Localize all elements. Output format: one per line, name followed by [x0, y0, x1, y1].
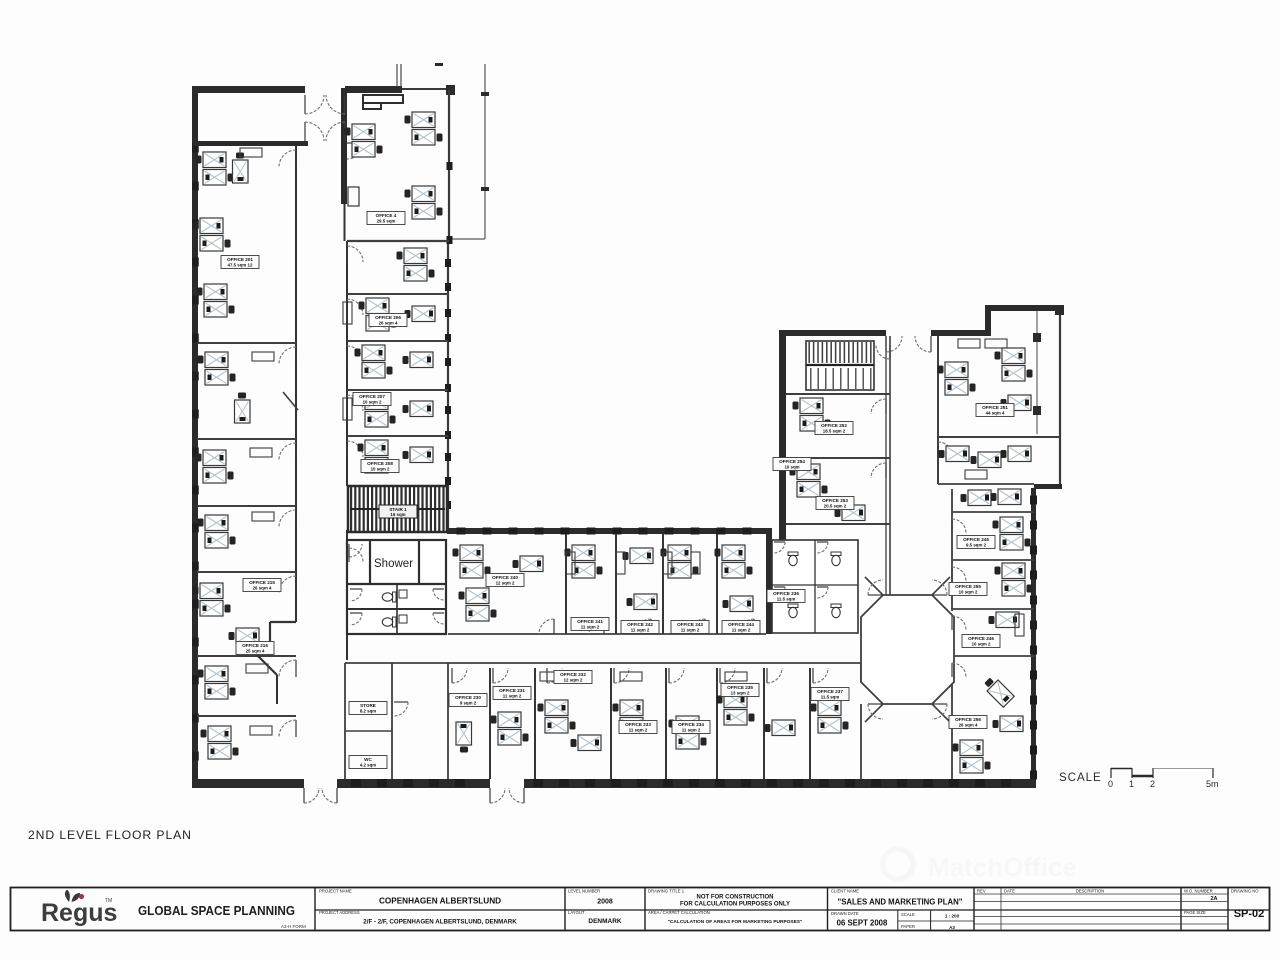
- svg-text:DENMARK: DENMARK: [588, 918, 622, 925]
- svg-text:18.5 sqm 2: 18.5 sqm 2: [823, 429, 846, 434]
- svg-text:OFFICE 231: OFFICE 231: [499, 688, 525, 693]
- svg-text:26 sqm 4: 26 sqm 4: [959, 723, 978, 728]
- svg-text:4.2 sqm: 4.2 sqm: [360, 763, 376, 768]
- svg-text:OFFICE 234: OFFICE 234: [678, 722, 704, 727]
- svg-text:MatchOffice: MatchOffice: [928, 852, 1077, 882]
- svg-text:OFFICE 208: OFFICE 208: [367, 461, 393, 466]
- svg-text:A3-H FORM: A3-H FORM: [281, 924, 306, 929]
- svg-text:DRAWING NO: DRAWING NO: [1231, 889, 1259, 894]
- svg-text:TM: TM: [105, 898, 112, 904]
- svg-text:12 sqm 2: 12 sqm 2: [564, 678, 583, 683]
- svg-text:11 sqm 2: 11 sqm 2: [631, 628, 650, 633]
- svg-text:1: 1: [1129, 779, 1134, 789]
- svg-text:11 sqm 2: 11 sqm 2: [629, 728, 648, 733]
- svg-text:OFFICE 242: OFFICE 242: [627, 622, 653, 627]
- svg-text:Shower: Shower: [374, 558, 413, 570]
- svg-text:OFFICE 232: OFFICE 232: [560, 672, 586, 677]
- svg-text:OFFICE 255: OFFICE 255: [955, 584, 981, 589]
- svg-text:OFFICE 235: OFFICE 235: [727, 685, 753, 690]
- svg-text:11.5 sqm: 11.5 sqm: [821, 695, 840, 700]
- svg-text:SCALE: SCALE: [901, 912, 915, 917]
- svg-text:5m: 5m: [1206, 779, 1219, 789]
- svg-text:OFFICE 245: OFFICE 245: [963, 537, 989, 542]
- svg-text:PAPER: PAPER: [901, 924, 915, 929]
- svg-text:9 sqm 2: 9 sqm 2: [460, 701, 477, 706]
- svg-text:A3: A3: [949, 925, 955, 930]
- svg-text:11 sqm 2: 11 sqm 2: [581, 625, 600, 630]
- svg-text:10 sqm 2: 10 sqm 2: [972, 642, 991, 647]
- svg-text:25 sqm 4: 25 sqm 4: [246, 649, 265, 654]
- svg-text:OFFICE 253: OFFICE 253: [822, 498, 848, 503]
- svg-text:DRAWING TITLE 1: DRAWING TITLE 1: [648, 889, 685, 894]
- svg-text:OFFICE 216: OFFICE 216: [242, 643, 268, 648]
- svg-text:NOT FOR CONSTRUCTION: NOT FOR CONSTRUCTION: [697, 895, 774, 901]
- svg-text:LEVEL NUMBER: LEVEL NUMBER: [568, 889, 600, 894]
- svg-text:13 sqm 2: 13 sqm 2: [731, 691, 750, 696]
- svg-text:11.5 sqm: 11.5 sqm: [777, 597, 796, 602]
- svg-text:44 sqm 4: 44 sqm 4: [986, 411, 1005, 416]
- svg-text:OFFICE 206: OFFICE 206: [375, 315, 401, 320]
- svg-text:16 sqm: 16 sqm: [390, 512, 405, 517]
- svg-text:SP-02: SP-02: [1234, 908, 1265, 920]
- svg-text:STORE: STORE: [360, 703, 376, 708]
- svg-text:LAYOUT: LAYOUT: [568, 910, 585, 915]
- svg-text:20.5 sqm 2: 20.5 sqm 2: [824, 504, 847, 509]
- svg-text:OFFICE 207: OFFICE 207: [359, 394, 385, 399]
- svg-text:11 sqm 2: 11 sqm 2: [732, 628, 751, 633]
- svg-text:OFFICE 246: OFFICE 246: [968, 636, 994, 641]
- svg-text:26 sqm 4: 26 sqm 4: [379, 321, 398, 326]
- svg-text:OFFICE 4: OFFICE 4: [376, 213, 397, 218]
- svg-text:OFFICE 241: OFFICE 241: [577, 619, 603, 624]
- svg-text:11 sqm 2: 11 sqm 2: [503, 694, 522, 699]
- svg-text:2008: 2008: [597, 899, 613, 906]
- svg-text:"SALES AND MARKETING PLAN": "SALES AND MARKETING PLAN": [838, 898, 963, 907]
- svg-text:10 sqm 2: 10 sqm 2: [363, 400, 382, 405]
- svg-text:DRAWN DATE: DRAWN DATE: [831, 911, 859, 916]
- svg-text:10 sqm 2: 10 sqm 2: [959, 590, 978, 595]
- svg-text:DATE: DATE: [1004, 889, 1015, 894]
- svg-text:47.5 sqm 12: 47.5 sqm 12: [228, 263, 253, 268]
- svg-text:PROJECT ADDRESS: PROJECT ADDRESS: [319, 910, 360, 915]
- svg-text:0: 0: [1108, 779, 1113, 789]
- svg-text:OFFICE 256: OFFICE 256: [955, 717, 981, 722]
- svg-text:OFFICE 243: OFFICE 243: [677, 622, 703, 627]
- svg-text:2/F - 2/F, COPENHAGEN ALBERTSL: 2/F - 2/F, COPENHAGEN ALBERTSLUND, DENMA…: [363, 919, 517, 926]
- svg-text:OFFICE 201: OFFICE 201: [227, 257, 253, 262]
- svg-text:10 sqm: 10 sqm: [784, 465, 799, 470]
- svg-text:2ND LEVEL FLOOR PLAN: 2ND LEVEL FLOOR PLAN: [28, 828, 192, 842]
- svg-text:2: 2: [1150, 779, 1155, 789]
- svg-text:COPENHAGEN ALBERTSLUND: COPENHAGEN ALBERTSLUND: [379, 897, 501, 906]
- svg-text:8.2 sqm: 8.2 sqm: [360, 709, 376, 714]
- svg-text:WC: WC: [364, 757, 372, 762]
- svg-text:10 sqm 2: 10 sqm 2: [371, 467, 390, 472]
- svg-text:12 sqm 2: 12 sqm 2: [496, 581, 515, 586]
- svg-text:OFFICE 230: OFFICE 230: [455, 695, 481, 700]
- svg-text:FOR CALCULATION PURPOSES ONLY: FOR CALCULATION PURPOSES ONLY: [680, 902, 790, 908]
- svg-text:9.5 sqm 2: 9.5 sqm 2: [966, 543, 987, 548]
- svg-text:"CALCULATION OF AREAS FOR MARK: "CALCULATION OF AREAS FOR MARKETING PURP…: [668, 919, 803, 925]
- svg-text:W.O. NUMBER: W.O. NUMBER: [1184, 889, 1213, 894]
- svg-text:OFFICE 244: OFFICE 244: [728, 622, 754, 627]
- svg-text:DESCRIPTION: DESCRIPTION: [1076, 889, 1105, 894]
- svg-text:2A: 2A: [1210, 896, 1217, 902]
- svg-text:1 : 200: 1 : 200: [945, 914, 960, 919]
- svg-text:OFFICE 240: OFFICE 240: [492, 575, 518, 580]
- svg-text:OFFICE 251: OFFICE 251: [982, 405, 1008, 410]
- svg-text:11 sqm 2: 11 sqm 2: [681, 628, 700, 633]
- svg-text:AREA / CARPET CALCULATION: AREA / CARPET CALCULATION: [648, 910, 710, 915]
- svg-text:OFFICE 237: OFFICE 237: [817, 689, 843, 694]
- svg-text:GLOBAL SPACE PLANNING: GLOBAL SPACE PLANNING: [138, 903, 295, 918]
- svg-text:OFFICE 215: OFFICE 215: [249, 580, 275, 585]
- svg-text:OFFICE 233: OFFICE 233: [625, 722, 651, 727]
- svg-text:CLIENT NAME: CLIENT NAME: [831, 889, 859, 894]
- svg-text:SCALE: SCALE: [1059, 772, 1102, 784]
- svg-text:OFFICE 254: OFFICE 254: [779, 459, 805, 464]
- svg-text:11 sqm 2: 11 sqm 2: [682, 728, 701, 733]
- svg-text:29.5 sqm: 29.5 sqm: [377, 219, 396, 224]
- svg-text:26 sqm 4: 26 sqm 4: [253, 586, 272, 591]
- svg-text:OFFICE 252: OFFICE 252: [821, 423, 847, 428]
- svg-text:PROJECT NAME: PROJECT NAME: [319, 889, 352, 894]
- svg-text:REV: REV: [977, 889, 986, 894]
- svg-text:OFFICE 236: OFFICE 236: [773, 591, 799, 596]
- svg-text:PAGE SIZE: PAGE SIZE: [1184, 910, 1206, 915]
- svg-text:06 SEPT 2008: 06 SEPT 2008: [837, 919, 888, 928]
